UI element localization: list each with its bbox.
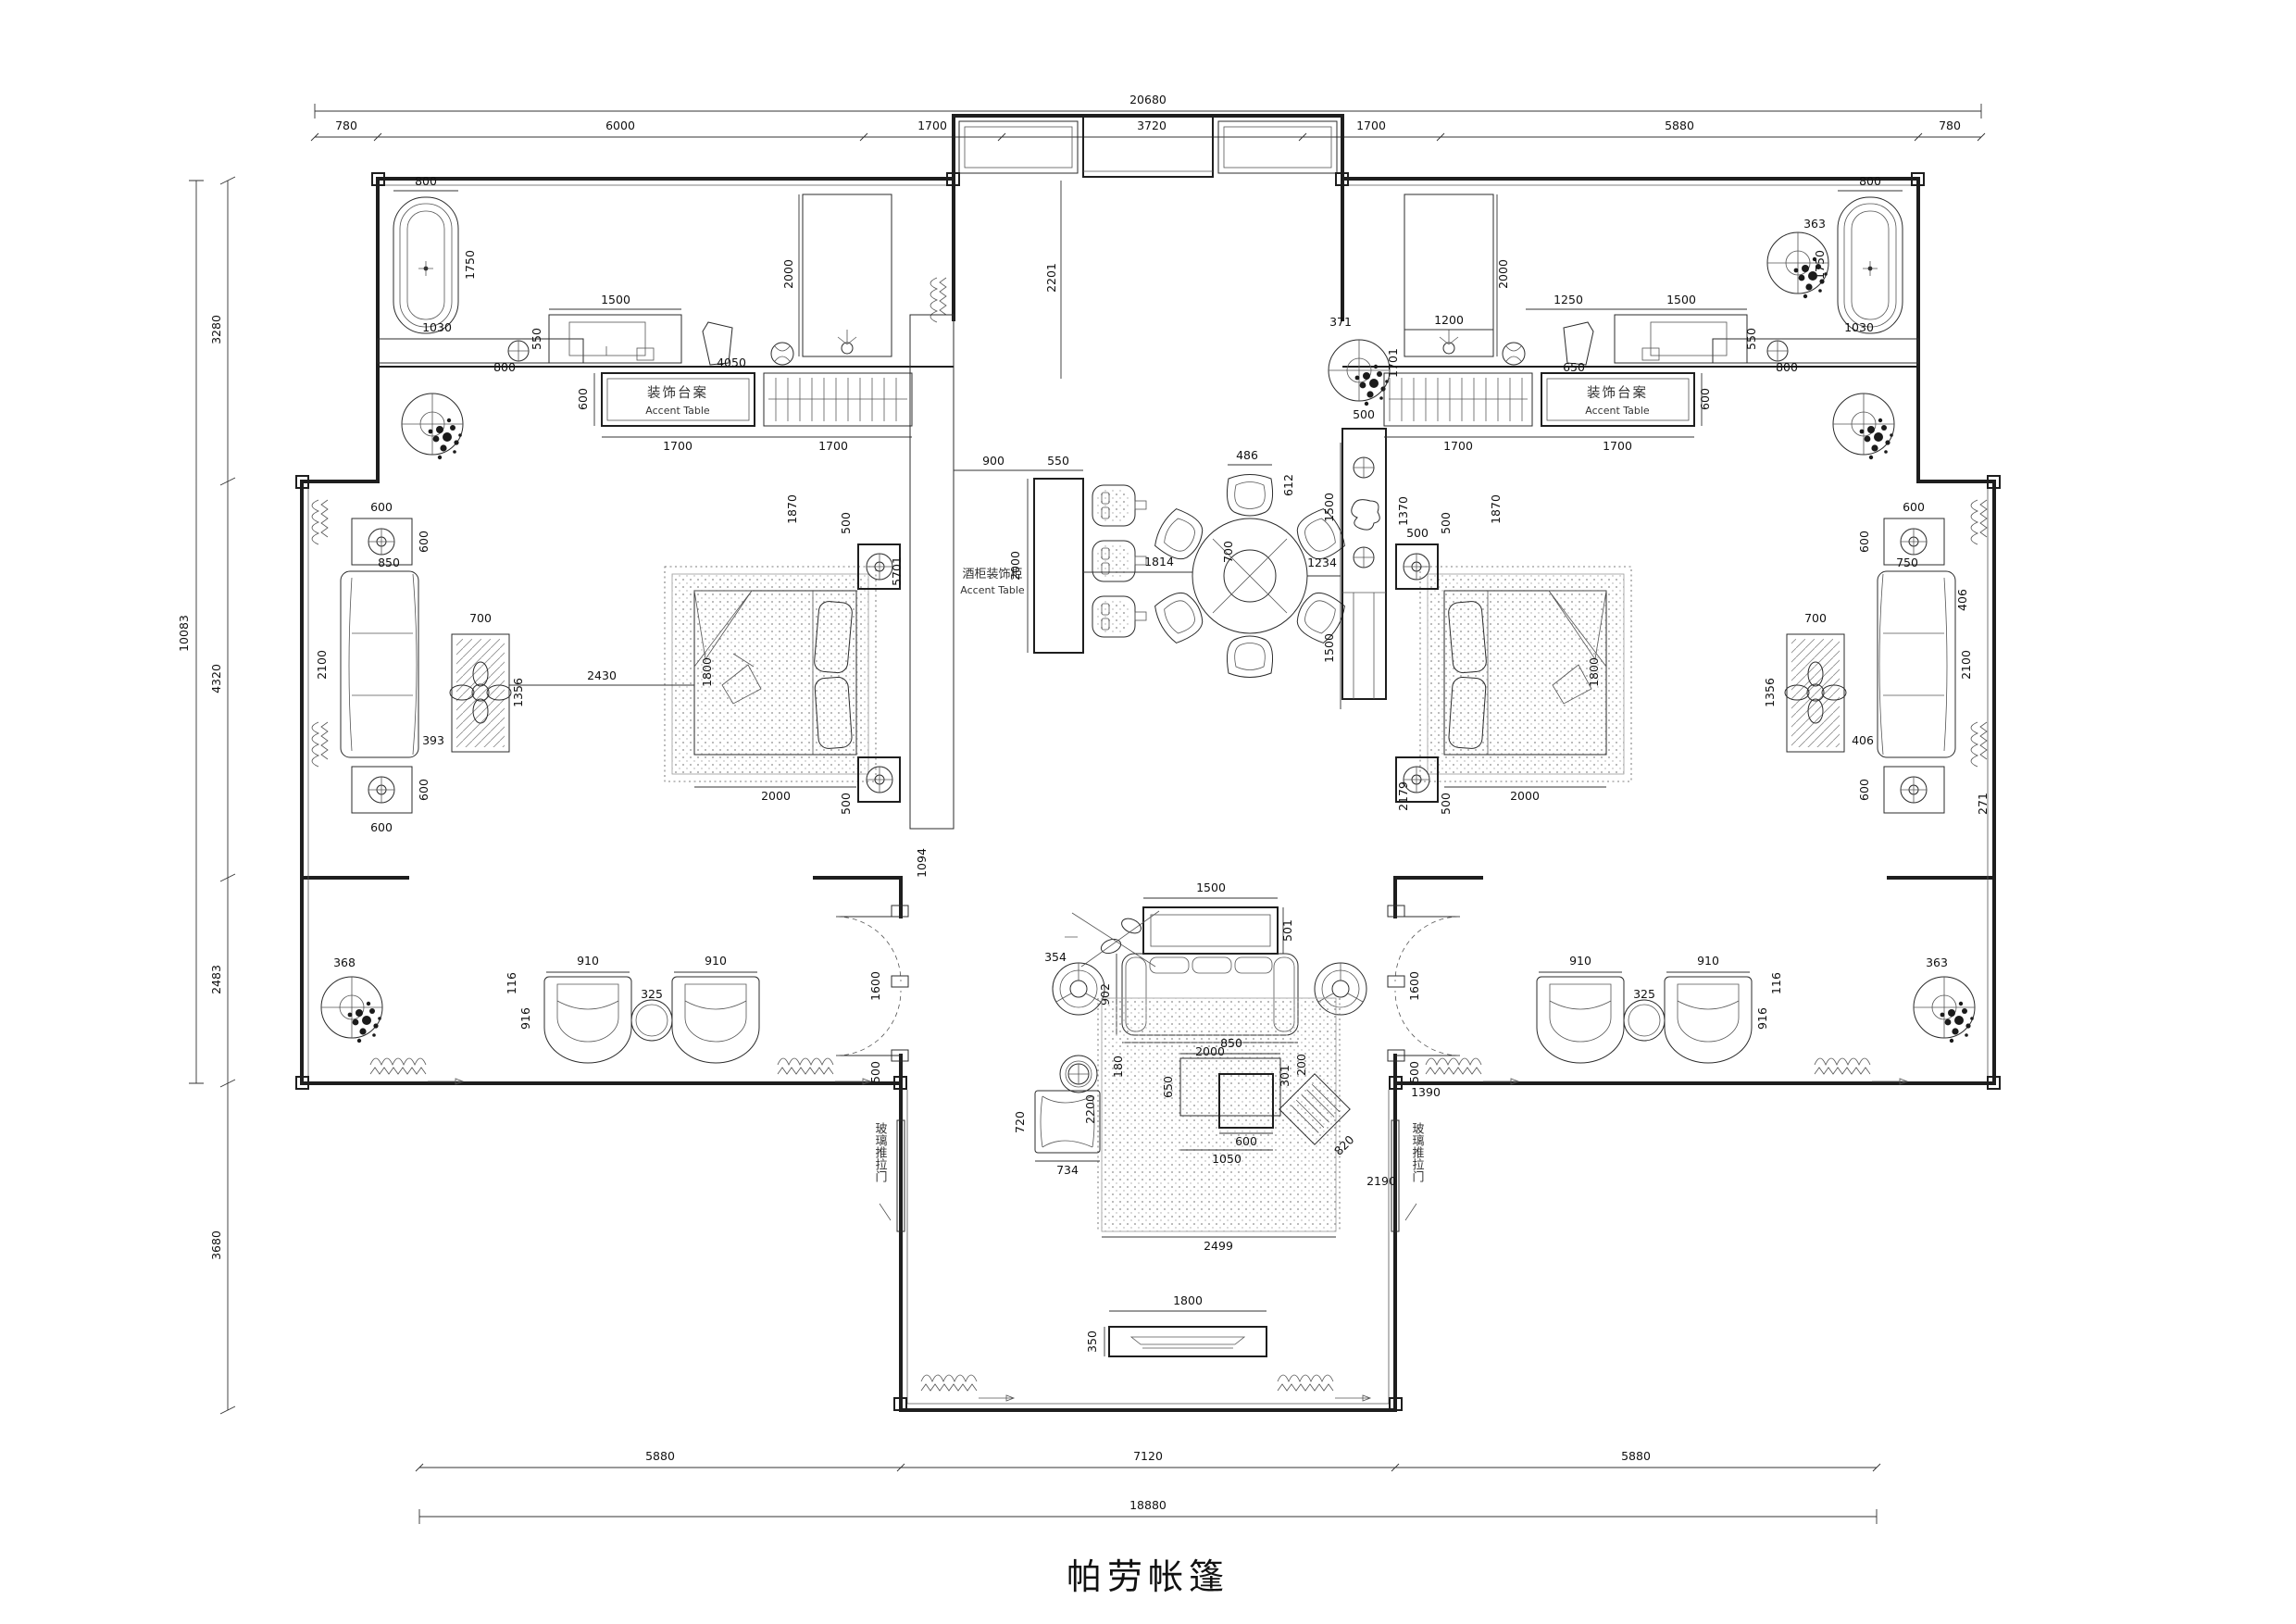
dim-label: 850 <box>378 556 400 569</box>
dim-label: 800 <box>1776 360 1798 374</box>
dim-label: 1500 <box>1322 493 1336 522</box>
dim-label: 700 <box>469 611 492 625</box>
tv-console: 1800 350 <box>1085 1293 1267 1356</box>
dim-label: 1500 <box>601 293 630 306</box>
dim-label: 780 <box>335 119 357 132</box>
bay-right: 600 600 600 2100 750 406 271 700 1356 40… <box>1763 500 1990 815</box>
plant-icon <box>321 977 382 1043</box>
dining-chair-icon <box>1227 475 1272 517</box>
floorplan-drawing: 20680 780 6000 1700 3720 1700 5880 780 5… <box>0 0 2296 1624</box>
dim-label: 1050 <box>1212 1152 1242 1166</box>
armchair-icon <box>544 977 631 1063</box>
dim-label: 600 <box>1857 531 1871 553</box>
dim-label: 354 <box>1044 950 1067 964</box>
dining-area: 2201 5701 酒柜装饰柜 Accent Table 1094 900 55… <box>890 181 1410 878</box>
dim-label: 550 <box>1744 328 1758 350</box>
dim-label: 6000 <box>605 119 635 132</box>
dim-label: 2179 <box>1396 781 1410 811</box>
dim-label: 734 <box>1056 1163 1079 1177</box>
armchair-icon <box>1665 977 1752 1063</box>
shower-right: 2000 1200 <box>1404 194 1510 356</box>
dimensions-left: 10083 3280 4320 2483 3680 <box>177 177 235 1414</box>
dim-label: 1030 <box>422 320 452 334</box>
dim-label: 20680 <box>1129 93 1167 106</box>
dim-label: 1200 <box>1434 313 1464 327</box>
dim-label: 600 <box>1857 779 1871 801</box>
dim-label: 325 <box>641 987 663 1001</box>
dim-label: 780 <box>1939 119 1961 132</box>
flower-table-left: 700 1356 393 <box>422 611 525 752</box>
dim-label: 406 <box>1955 589 1969 611</box>
right-suite: 800 1750 363 1030 1500 1250 550 650 800 … <box>1384 174 1990 815</box>
dim-label: 1700 <box>1443 439 1473 453</box>
dim-label: 116 <box>505 972 518 994</box>
dim-label: 910 <box>1569 954 1591 968</box>
dimensions-bottom: 5880 7120 5880 18880 <box>416 1449 1880 1524</box>
dim-label: 1700 <box>663 439 693 453</box>
dim-label: 2000 <box>761 789 791 803</box>
dim-label: 1600 <box>868 971 882 1001</box>
dim-label: 1094 <box>915 848 929 878</box>
armchair-icon <box>1537 977 1624 1063</box>
dim-label: 500 <box>839 512 853 534</box>
dim-label: 1800 <box>1587 657 1601 687</box>
dim-label: 750 <box>1896 556 1918 569</box>
curtain-icon <box>930 278 946 322</box>
dim-label: 1500 <box>1322 633 1336 663</box>
dim-label: 116 <box>1769 972 1783 994</box>
plant-icon <box>402 394 463 459</box>
dim-label: 363 <box>1803 217 1826 231</box>
dim-label: 486 <box>1236 448 1258 462</box>
dim-label: 500 <box>868 1061 882 1083</box>
vanity-left: 1500 550 800 4050 <box>493 293 793 374</box>
dim-label: 2430 <box>587 668 617 682</box>
dim-label: 612 <box>1281 474 1295 496</box>
dim-label: 800 <box>1859 174 1881 188</box>
left-suite: 800 1750 1030 1500 550 800 4050 2000 装饰台… <box>312 174 946 834</box>
bar-chair-icon <box>1092 596 1146 637</box>
dim-label: 1700 <box>1603 439 1632 453</box>
curtain-icon <box>370 1058 463 1084</box>
dim-label: 500 <box>1406 526 1429 540</box>
dim-label: 5880 <box>1665 119 1694 132</box>
dim-label: 2000 <box>1510 789 1540 803</box>
dim-label: 1870 <box>1489 494 1503 524</box>
dim-label: 1234 <box>1307 556 1337 569</box>
dim-label: 850 <box>1220 1036 1242 1050</box>
dim-label: 1356 <box>1763 678 1777 707</box>
dim-label: 500 <box>1407 1061 1421 1083</box>
dim-label: 600 <box>576 388 590 410</box>
dim-label: 301 <box>1278 1065 1291 1087</box>
ball-decor-icon <box>1503 343 1525 365</box>
dim-label: 368 <box>333 956 356 969</box>
dim-label: 406 <box>1852 733 1874 747</box>
vanity-right: 1500 1250 550 650 800 <box>1503 293 1798 374</box>
dim-label: 180 <box>1111 1056 1125 1078</box>
bar-chair-icon <box>1092 485 1146 526</box>
drawing-title: 帕劳帐篷 <box>1067 1556 1229 1597</box>
side-table-icon <box>631 1000 672 1041</box>
dim-label: 1390 <box>1411 1085 1441 1099</box>
dim-label: 600 <box>370 500 393 514</box>
dim-label: 650 <box>1161 1076 1175 1098</box>
dining-chair-icon <box>1151 586 1209 646</box>
dim-label: 1500 <box>1196 881 1226 894</box>
dining-chair-icon <box>1227 636 1272 678</box>
dim-label: 371 <box>1329 315 1352 329</box>
dim-label: 1370 <box>1396 496 1410 526</box>
plant-icon <box>1914 977 1975 1043</box>
dim-label: 700 <box>1804 611 1827 625</box>
dim-label: 650 <box>1563 360 1585 374</box>
double-door-right: 1600 500 <box>1388 906 1460 1083</box>
plant-icon <box>1329 340 1390 406</box>
floor-lamp-icon <box>1053 963 1104 1015</box>
slatted-cabinet-right <box>1384 373 1532 426</box>
ball-decor-icon <box>771 343 793 365</box>
double-door-left: 1600 500 <box>836 906 908 1083</box>
dim-label: 2000 <box>781 259 795 289</box>
dim-label: 1870 <box>785 494 799 524</box>
dim-label: 2201 <box>1044 263 1058 293</box>
dim-label: 910 <box>577 954 599 968</box>
dim-label: 900 <box>982 454 1004 468</box>
bed-left: 1800 2000 2430 <box>509 567 876 803</box>
dim-label: 1500 <box>1666 293 1696 306</box>
dim-label: 2000 <box>1496 259 1510 289</box>
plant-icon <box>1767 232 1828 298</box>
plant-icon <box>1833 394 1894 459</box>
bar-chair-icon <box>1092 541 1146 581</box>
dim-label: 350 <box>1085 1330 1099 1353</box>
dim-label: 271 <box>1976 793 1990 815</box>
dim-label: 1814 <box>1144 555 1174 568</box>
living-area: 1500 501 2000 902 354 2499 2200 180 850 … <box>1013 881 1441 1253</box>
dim-label: 550 <box>530 328 543 350</box>
accent-table-label-en: Accent Table <box>1585 405 1650 417</box>
dim-label: 1356 <box>511 678 525 707</box>
dim-label: 1800 <box>1173 1293 1203 1307</box>
dim-label: 500 <box>1439 793 1453 815</box>
curtain-icon <box>778 1058 870 1084</box>
dim-label: 2499 <box>1204 1239 1233 1253</box>
dim-label: 5701 <box>890 556 904 586</box>
dim-label: 600 <box>1903 500 1925 514</box>
dim-label: 2100 <box>1959 650 1973 680</box>
dim-label: 10083 <box>177 615 191 652</box>
dim-label: 3680 <box>209 1230 223 1260</box>
left-wing: 368 910 910 325 916 116 1600 500 <box>321 906 908 1084</box>
dim-label: 550 <box>1047 454 1069 468</box>
dim-label: 3280 <box>209 315 223 344</box>
dim-label: 1800 <box>700 657 714 687</box>
dim-label: 800 <box>415 174 437 188</box>
bay-left: 600 600 600 600 2100 850 700 1356 393 <box>312 500 525 834</box>
dim-label: 500 <box>1353 407 1375 421</box>
dim-label: 501 <box>1280 919 1294 942</box>
floorplan-sheet: 20680 780 6000 1700 3720 1700 5880 780 5… <box>0 0 2296 1624</box>
dim-label: 5880 <box>1621 1449 1651 1463</box>
dim-label: 4320 <box>209 664 223 693</box>
dim-label: 910 <box>705 954 727 968</box>
curtain-icon <box>1815 1058 1907 1084</box>
dim-label: 1750 <box>463 250 477 280</box>
side-table-icon <box>1624 1000 1665 1041</box>
bed-right: 1800 2000 <box>1420 567 1631 803</box>
bath-counter-left <box>378 339 583 363</box>
dim-label: 2100 <box>315 650 329 680</box>
dim-label: 200 <box>1294 1054 1308 1076</box>
dim-label: 5880 <box>645 1449 675 1463</box>
dim-label: 3720 <box>1137 119 1167 132</box>
dim-label: 600 <box>417 779 430 801</box>
glass-door-label: 玻璃推拉门 <box>873 1122 888 1182</box>
dim-label: 1600 <box>1407 971 1421 1001</box>
dim-label: 720 <box>1013 1111 1027 1133</box>
dim-label: 500 <box>839 793 853 815</box>
dim-label: 800 <box>493 360 516 374</box>
dim-label: 600 <box>1698 388 1712 410</box>
dim-label: 916 <box>518 1007 532 1030</box>
glass-door-label: 玻璃推拉门 <box>1410 1122 1425 1182</box>
curtain-icon <box>921 1375 1014 1401</box>
bathtub-left: 800 1750 <box>393 174 477 333</box>
shower-left: 2000 <box>781 194 892 356</box>
armchair-icon <box>672 977 759 1063</box>
basin-icon <box>508 341 529 361</box>
dining-table: 486 612 700 1234 1500 1500 <box>1151 443 1349 709</box>
stool-icon <box>1564 322 1593 365</box>
dim-label: 600 <box>1235 1134 1257 1148</box>
dim-label: 1250 <box>1554 293 1583 306</box>
dim-label: 18880 <box>1129 1498 1167 1512</box>
dim-label: 700 <box>1221 541 1235 563</box>
dim-label: 500 <box>1439 512 1453 534</box>
dim-label: 1700 <box>1356 119 1386 132</box>
dim-label: 2483 <box>209 965 223 994</box>
dim-label: 325 <box>1633 987 1655 1001</box>
accent-table-label-cn: 装饰台案 <box>647 384 708 401</box>
wine-cabinet-strip: 5701 酒柜装饰柜 Accent Table 1094 <box>890 315 1025 878</box>
slatted-cabinet-left <box>764 373 912 426</box>
bay-sofa-left: 2100 850 <box>315 556 418 757</box>
flower-table-right: 700 1356 406 <box>1763 611 1874 752</box>
bay-sofa-right: 2100 750 406 271 <box>1878 556 1990 815</box>
accent-table-label-cn: 装饰台案 <box>1587 384 1648 401</box>
dim-label: 1030 <box>1844 320 1874 334</box>
accent-table-label-en: Accent Table <box>645 405 710 417</box>
dim-label: 393 <box>422 733 444 747</box>
dim-label: 363 <box>1926 956 1948 969</box>
dim-label: 600 <box>370 820 393 834</box>
right-wing: 363 910 910 325 916 116 1600 500 <box>1388 906 1975 1084</box>
dim-label: 7120 <box>1133 1449 1163 1463</box>
dim-label: 2000 <box>1008 551 1022 581</box>
curtain-icon <box>1426 1058 1518 1084</box>
bar-console: 900 550 2000 <box>954 454 1146 653</box>
wine-cabinet-label-en: Accent Table <box>960 584 1025 596</box>
dim-label: 910 <box>1697 954 1719 968</box>
dim-label: 600 <box>417 531 430 553</box>
curtain-icon <box>1278 1375 1370 1401</box>
dim-label: 916 <box>1755 1007 1769 1030</box>
dim-label: 1700 <box>818 439 848 453</box>
dim-label: 4050 <box>717 356 746 369</box>
bathtub-right: 800 1750 <box>1813 174 1903 333</box>
dim-label: 1700 <box>917 119 947 132</box>
